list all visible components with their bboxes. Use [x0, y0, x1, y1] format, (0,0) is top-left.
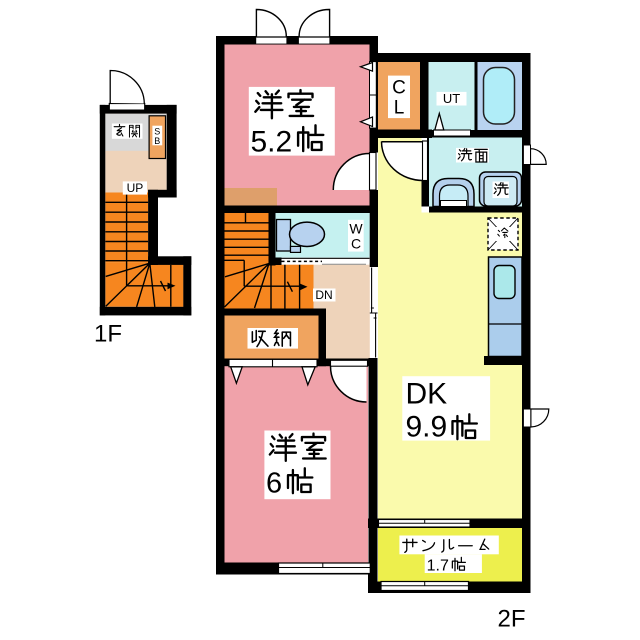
- svg-text:DN: DN: [315, 288, 332, 302]
- svg-text:W: W: [349, 221, 363, 237]
- svg-text:DK: DK: [406, 378, 448, 411]
- svg-text:5.2: 5.2: [251, 126, 293, 159]
- svg-text:B: B: [154, 136, 160, 146]
- svg-text:L: L: [394, 98, 405, 119]
- svg-text:1.7: 1.7: [427, 558, 449, 575]
- svg-text:2F: 2F: [498, 606, 526, 633]
- svg-text:1F: 1F: [94, 321, 122, 348]
- svg-text:9.9: 9.9: [406, 411, 448, 444]
- svg-text:UP: UP: [127, 181, 144, 195]
- svg-text:C: C: [351, 236, 361, 252]
- svg-text:UT: UT: [443, 91, 460, 106]
- svg-text:C: C: [392, 78, 406, 99]
- svg-text:6: 6: [266, 468, 282, 500]
